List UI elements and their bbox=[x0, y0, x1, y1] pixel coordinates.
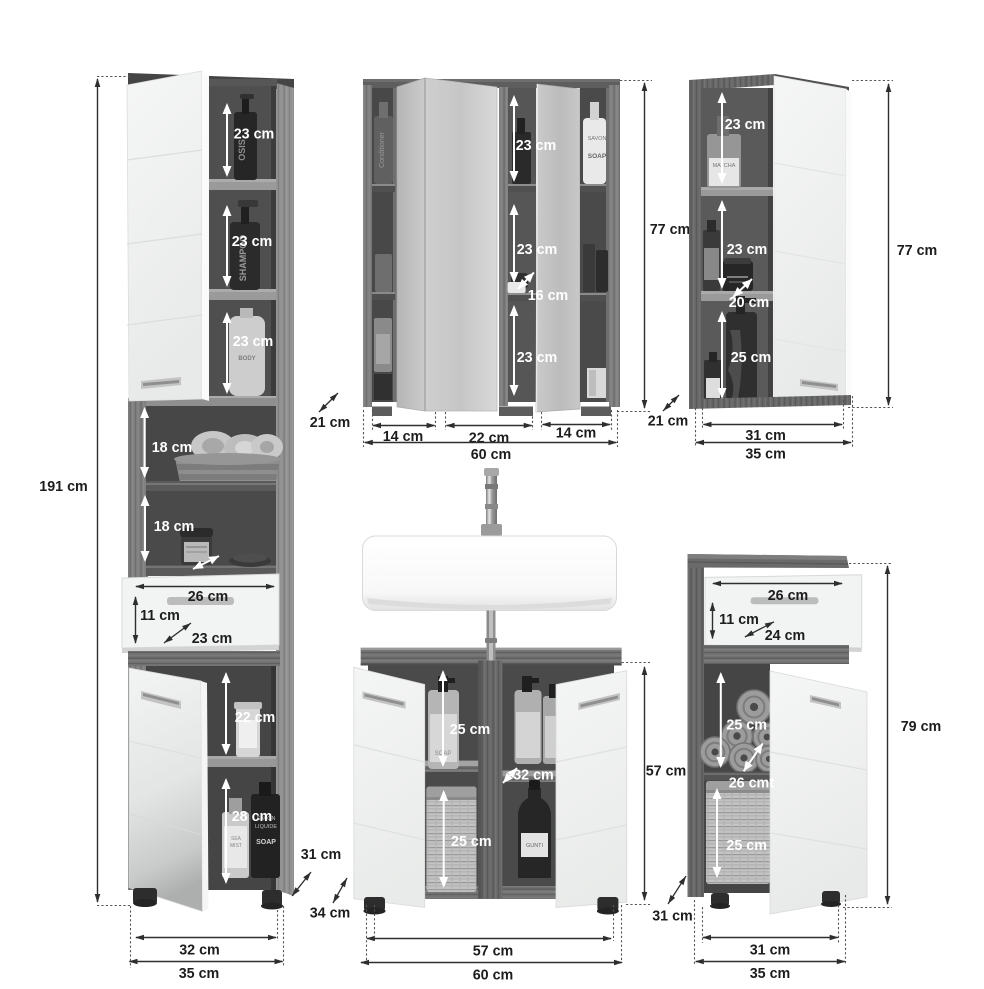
svg-text:23 cm: 23 cm bbox=[233, 334, 274, 350]
svg-text:SOAP: SOAP bbox=[588, 153, 607, 160]
svg-text:32 cm: 32 cm bbox=[513, 767, 554, 783]
svg-text:21 cm: 21 cm bbox=[310, 415, 351, 431]
svg-text:31 cm: 31 cm bbox=[745, 428, 786, 444]
svg-text:SOAP: SOAP bbox=[256, 839, 276, 846]
svg-text:57 cm: 57 cm bbox=[646, 764, 687, 780]
svg-text:Conditioner: Conditioner bbox=[379, 131, 386, 167]
svg-text:MIST: MIST bbox=[230, 843, 242, 849]
svg-text:BODY: BODY bbox=[238, 356, 255, 362]
svg-text:191 cm: 191 cm bbox=[39, 479, 88, 495]
svg-text:23 cm: 23 cm bbox=[234, 127, 275, 143]
svg-text:79 cm: 79 cm bbox=[901, 719, 942, 735]
svg-text:77 cm: 77 cm bbox=[650, 222, 691, 238]
svg-text:18 cm: 18 cm bbox=[154, 519, 195, 535]
svg-text:14 cm: 14 cm bbox=[556, 426, 597, 442]
svg-text:31 cm: 31 cm bbox=[750, 943, 791, 959]
svg-text:31 cm: 31 cm bbox=[301, 847, 342, 863]
svg-text:31 cm: 31 cm bbox=[652, 909, 693, 925]
svg-text:20 cm: 20 cm bbox=[729, 295, 770, 311]
svg-text:57 cm: 57 cm bbox=[473, 944, 514, 960]
svg-text:26 cm: 26 cm bbox=[768, 588, 809, 604]
svg-text:23 cm: 23 cm bbox=[232, 234, 273, 250]
svg-text:35 cm: 35 cm bbox=[745, 447, 786, 463]
svg-text:60 cm: 60 cm bbox=[471, 447, 512, 463]
svg-text:25 cm: 25 cm bbox=[726, 838, 767, 854]
svg-text:32 cm: 32 cm bbox=[179, 943, 220, 959]
svg-text:11 cm: 11 cm bbox=[140, 608, 180, 624]
svg-text:SEA: SEA bbox=[231, 836, 242, 842]
svg-text:24 cm: 24 cm bbox=[765, 628, 806, 644]
svg-text:60 cm: 60 cm bbox=[473, 968, 514, 984]
svg-text:23 cm: 23 cm bbox=[727, 242, 768, 258]
svg-text:23 cm: 23 cm bbox=[192, 631, 233, 647]
svg-text:77 cm: 77 cm bbox=[897, 243, 938, 259]
svg-text:16 cm: 16 cm bbox=[528, 288, 569, 304]
svg-text:34 cm: 34 cm bbox=[310, 906, 351, 922]
svg-text:22 cm: 22 cm bbox=[235, 710, 276, 726]
svg-text:18 cm: 18 cm bbox=[152, 440, 193, 456]
svg-text:25 cm: 25 cm bbox=[726, 718, 767, 734]
svg-text:28 cm: 28 cm bbox=[232, 809, 273, 825]
svg-text:25 cm: 25 cm bbox=[731, 350, 772, 366]
svg-text:23 cm: 23 cm bbox=[516, 138, 557, 154]
svg-text:MATCHA: MATCHA bbox=[713, 163, 736, 169]
svg-text:26 cmt: 26 cmt bbox=[729, 776, 775, 792]
svg-text:23 cm: 23 cm bbox=[725, 117, 766, 133]
svg-text:25 cm: 25 cm bbox=[451, 834, 492, 850]
svg-text:11 cm: 11 cm bbox=[719, 612, 759, 628]
svg-text:26 cm: 26 cm bbox=[188, 589, 229, 605]
svg-text:23 cm: 23 cm bbox=[517, 350, 558, 366]
svg-text:21 cm: 21 cm bbox=[648, 414, 689, 430]
svg-text:SAVON: SAVON bbox=[588, 136, 607, 142]
svg-text:35 cm: 35 cm bbox=[179, 966, 220, 982]
svg-text:22 cm: 22 cm bbox=[469, 431, 510, 447]
svg-text:35 cm: 35 cm bbox=[750, 966, 791, 982]
svg-text:25 cm: 25 cm bbox=[450, 722, 491, 738]
svg-text:23 cm: 23 cm bbox=[517, 242, 558, 258]
svg-text:GUNTI: GUNTI bbox=[526, 843, 544, 849]
